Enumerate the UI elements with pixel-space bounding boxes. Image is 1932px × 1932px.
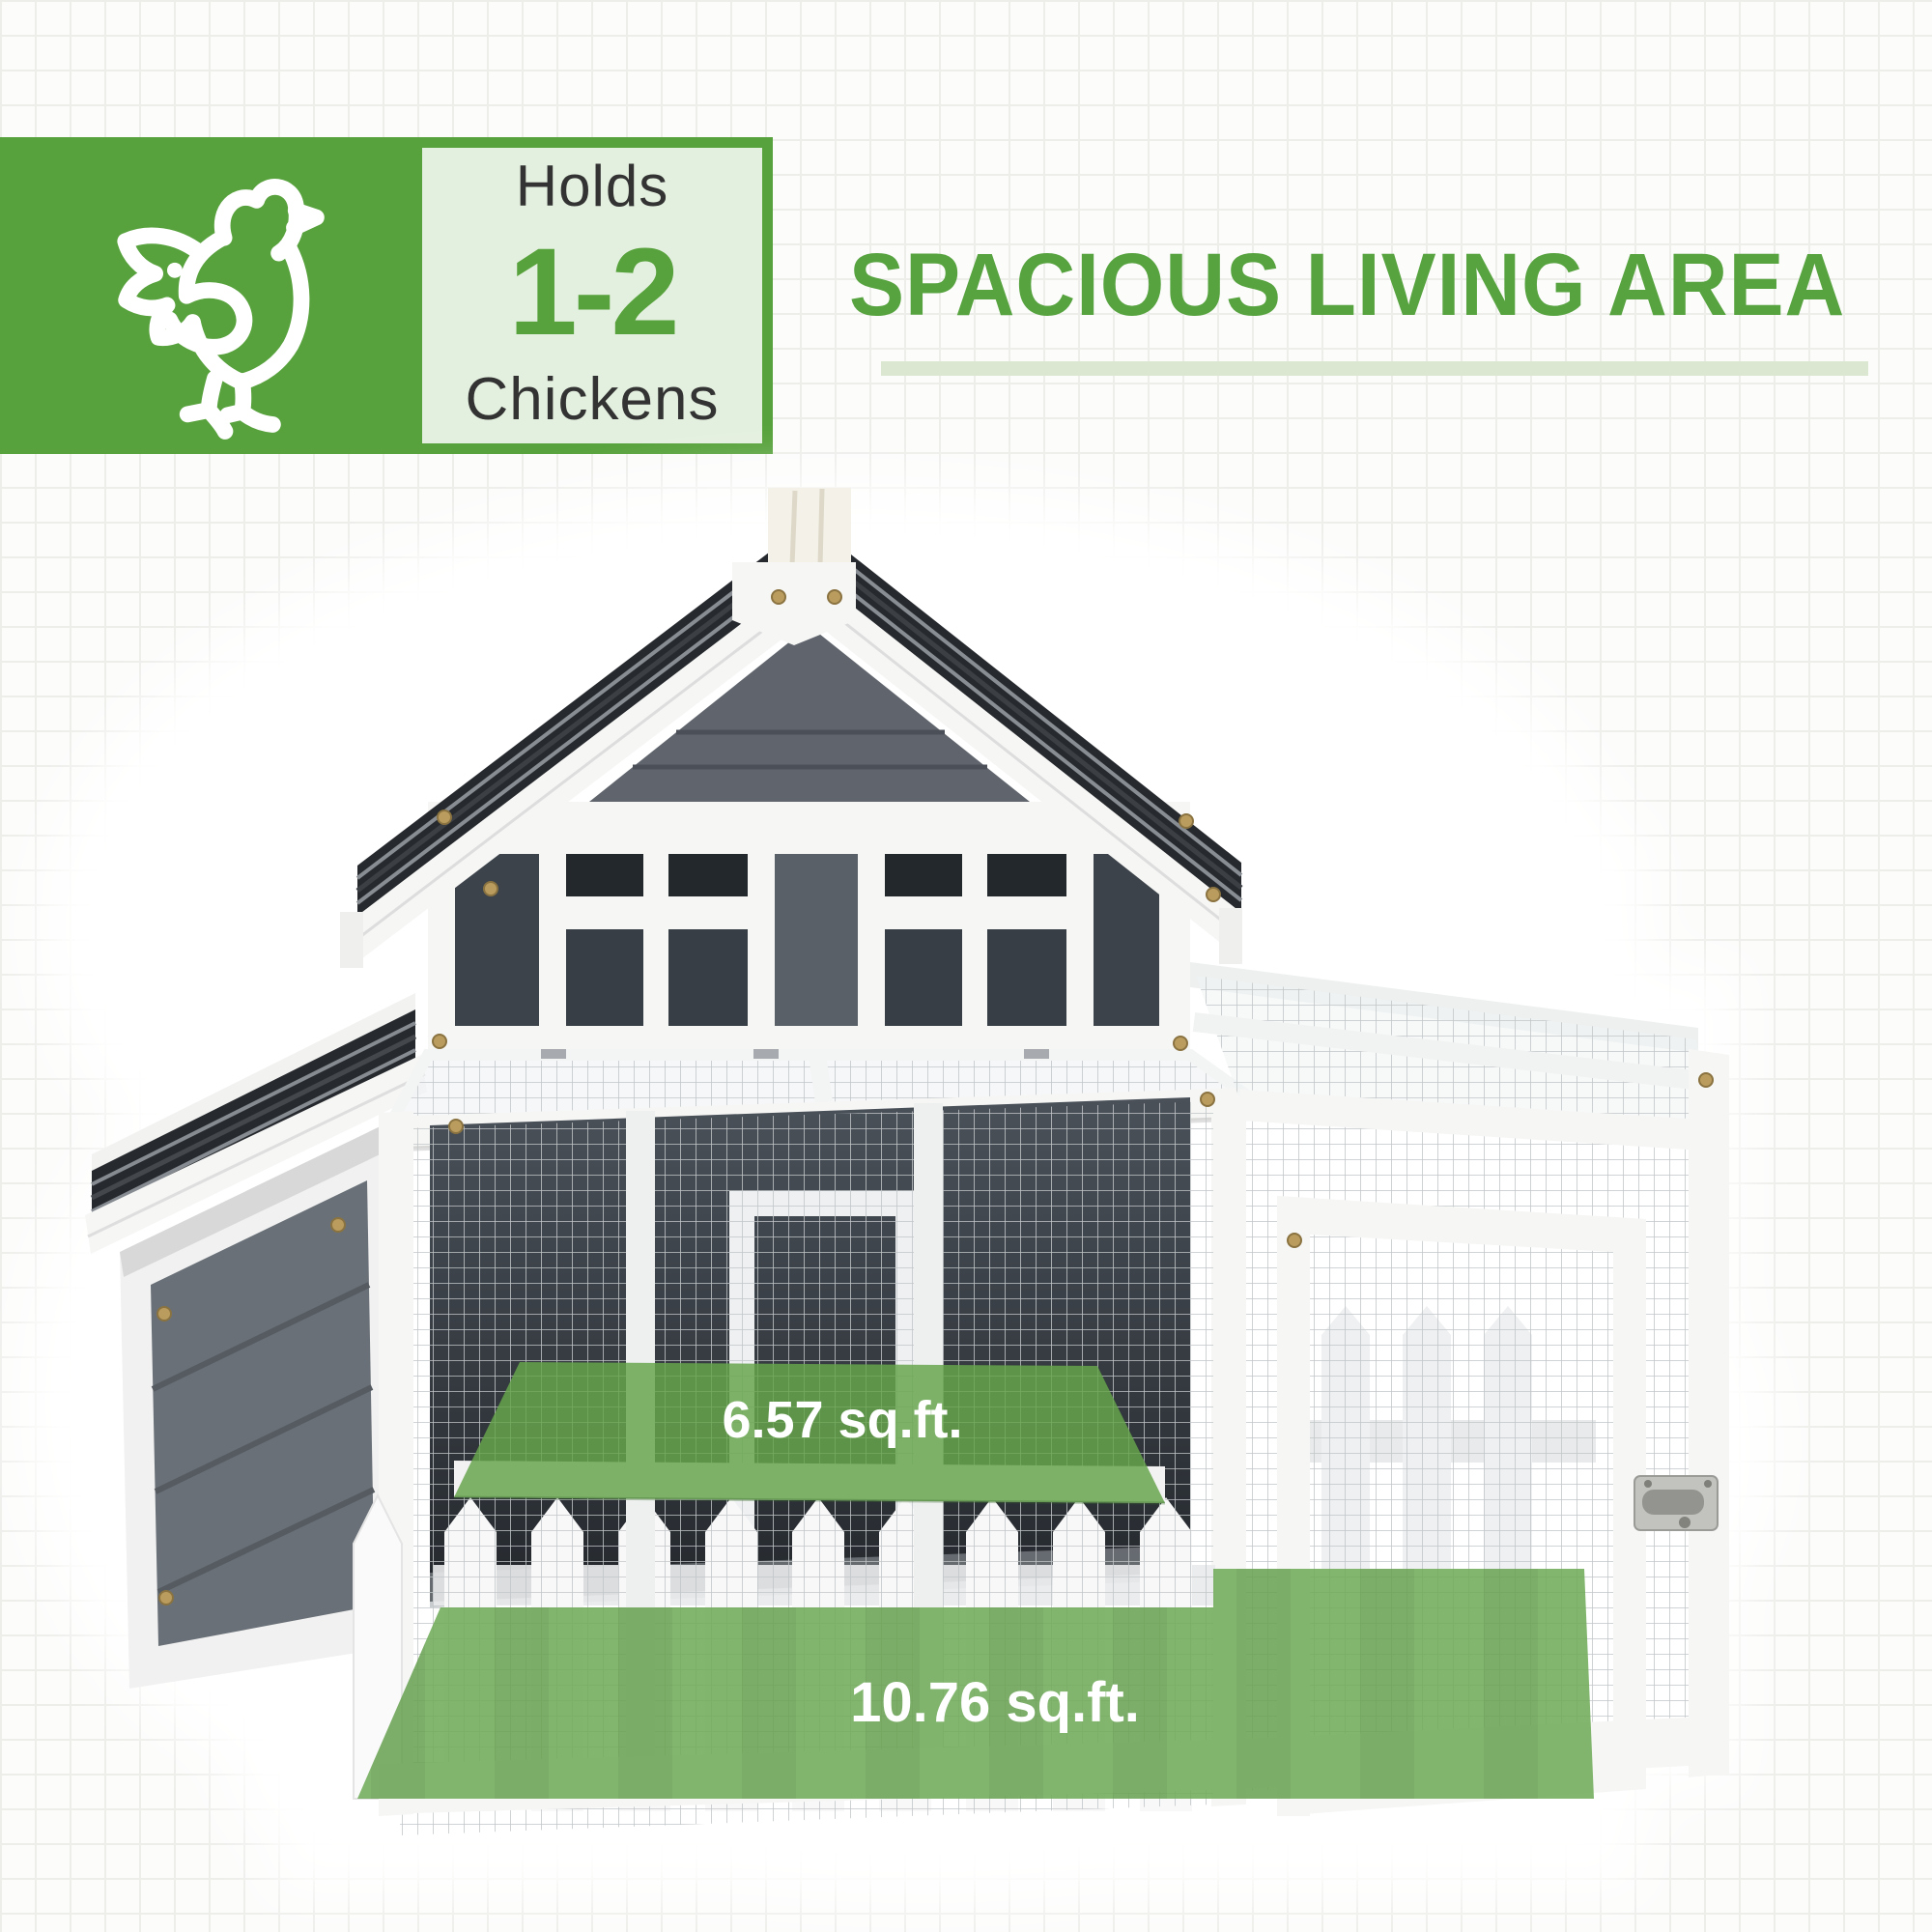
infographic-page: Holds 1-2 Chickens SPACIOUS LIVING AREA xyxy=(0,0,1932,1932)
upper-area-label: 6.57 sq.ft. xyxy=(722,1391,962,1449)
upper-platform-overlay: 6.57 sq.ft. xyxy=(454,1362,1165,1503)
latch-icon xyxy=(1634,1476,1718,1530)
product-photo-coop: 6.57 sq.ft. 10.76 sq.ft. xyxy=(0,0,1932,1932)
ground-area-label: 10.76 sq.ft. xyxy=(850,1671,1140,1734)
window-band xyxy=(428,854,1190,1026)
